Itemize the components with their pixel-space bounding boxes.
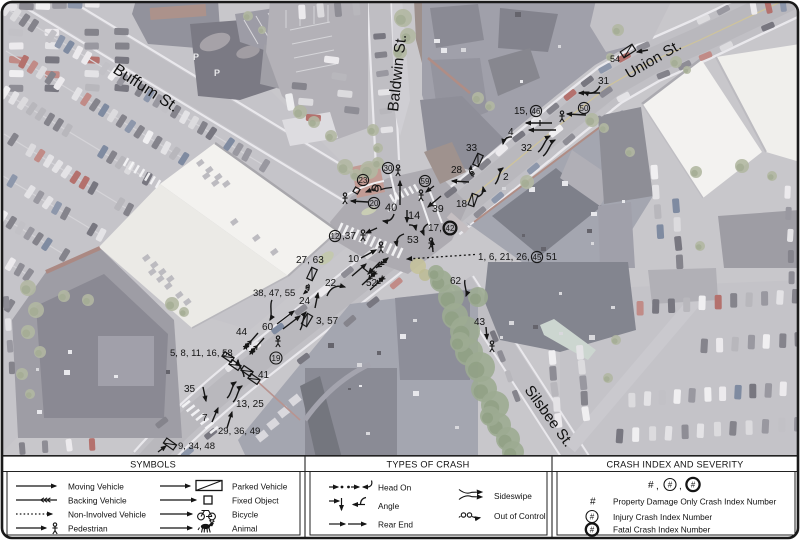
svg-text:SYMBOLS: SYMBOLS	[130, 460, 176, 470]
svg-text:40: 40	[385, 202, 397, 214]
svg-text:62: 62	[450, 276, 462, 287]
svg-text:15,: 15,	[514, 106, 528, 117]
svg-text:Fatal Crash Index Number: Fatal Crash Index Number	[613, 525, 711, 535]
svg-text:7: 7	[202, 413, 208, 424]
svg-text:12: 12	[331, 232, 340, 241]
svg-text:#: #	[590, 525, 595, 534]
svg-text:35: 35	[184, 384, 196, 395]
svg-text:#: #	[691, 480, 696, 489]
svg-text:Animal: Animal	[232, 524, 258, 534]
svg-text:Backing Vehicle: Backing Vehicle	[68, 496, 127, 506]
svg-text:38, 47, 55: 38, 47, 55	[253, 288, 295, 299]
svg-text:20: 20	[370, 199, 379, 208]
svg-text:42: 42	[446, 224, 455, 233]
svg-text:30: 30	[384, 164, 393, 173]
svg-text:23: 23	[359, 176, 368, 185]
svg-text:33: 33	[466, 143, 478, 154]
svg-text:CRASH INDEX AND SEVERITY: CRASH INDEX AND SEVERITY	[606, 460, 743, 470]
svg-text:59: 59	[421, 177, 430, 186]
svg-text:14: 14	[408, 210, 420, 222]
svg-text:19: 19	[272, 354, 281, 363]
svg-text:44: 44	[236, 327, 248, 338]
svg-text:Rear End: Rear End	[378, 520, 413, 530]
svg-text:32: 32	[521, 143, 533, 154]
svg-text:60: 60	[262, 322, 274, 333]
svg-text:52: 52	[366, 278, 378, 289]
svg-text:Parked Vehicle: Parked Vehicle	[232, 482, 288, 492]
svg-text:,37: ,37	[342, 231, 356, 242]
svg-text:#: #	[648, 480, 654, 491]
svg-text:3, 57: 3, 57	[316, 316, 339, 327]
svg-text:Non-Involved Vehicle: Non-Involved Vehicle	[68, 510, 146, 520]
svg-text:#: #	[668, 480, 673, 489]
svg-text:Head On: Head On	[378, 483, 412, 493]
svg-text:54: 54	[610, 54, 620, 64]
svg-text:Sideswipe: Sideswipe	[494, 491, 532, 501]
svg-text:24: 24	[299, 296, 311, 307]
svg-text:Moving Vehicle: Moving Vehicle	[68, 482, 124, 492]
svg-text:Injury Crash Index Number: Injury Crash Index Number	[613, 512, 712, 522]
svg-text:,: ,	[679, 481, 682, 492]
svg-text:45: 45	[533, 253, 542, 262]
svg-text:2: 2	[503, 172, 509, 183]
svg-text:10: 10	[348, 254, 360, 265]
svg-text:Property Damage Only Crash Ind: Property Damage Only Crash Index Number	[613, 497, 776, 507]
svg-text:Pedestrian: Pedestrian	[68, 524, 108, 534]
svg-text:51: 51	[546, 252, 558, 263]
svg-text:43: 43	[474, 317, 486, 328]
svg-text:50: 50	[580, 104, 589, 113]
svg-text:31: 31	[598, 76, 610, 87]
svg-text:39: 39	[432, 203, 444, 215]
svg-text:#: #	[590, 512, 595, 521]
svg-text:13, 25: 13, 25	[236, 399, 264, 410]
svg-text:53: 53	[407, 234, 419, 246]
svg-text:17,: 17,	[428, 223, 442, 234]
svg-text:Out of Control: Out of Control	[494, 511, 546, 521]
svg-text:28: 28	[451, 165, 463, 176]
svg-text:Angle: Angle	[378, 501, 400, 511]
svg-text:#: #	[590, 497, 596, 508]
svg-text:46: 46	[532, 107, 541, 116]
svg-text:1, 6, 21, 26,: 1, 6, 21, 26,	[478, 252, 530, 263]
svg-text:27, 63: 27, 63	[296, 255, 324, 266]
svg-text:Fixed Object: Fixed Object	[232, 496, 279, 506]
svg-text:TYPES OF CRASH: TYPES OF CRASH	[387, 460, 470, 470]
svg-text:,: ,	[656, 481, 659, 492]
svg-text:18: 18	[456, 199, 468, 210]
svg-text:9, 34, 48: 9, 34, 48	[178, 441, 215, 452]
svg-text:29, 36, 49: 29, 36, 49	[218, 426, 260, 437]
svg-text:Bicycle: Bicycle	[232, 510, 259, 520]
